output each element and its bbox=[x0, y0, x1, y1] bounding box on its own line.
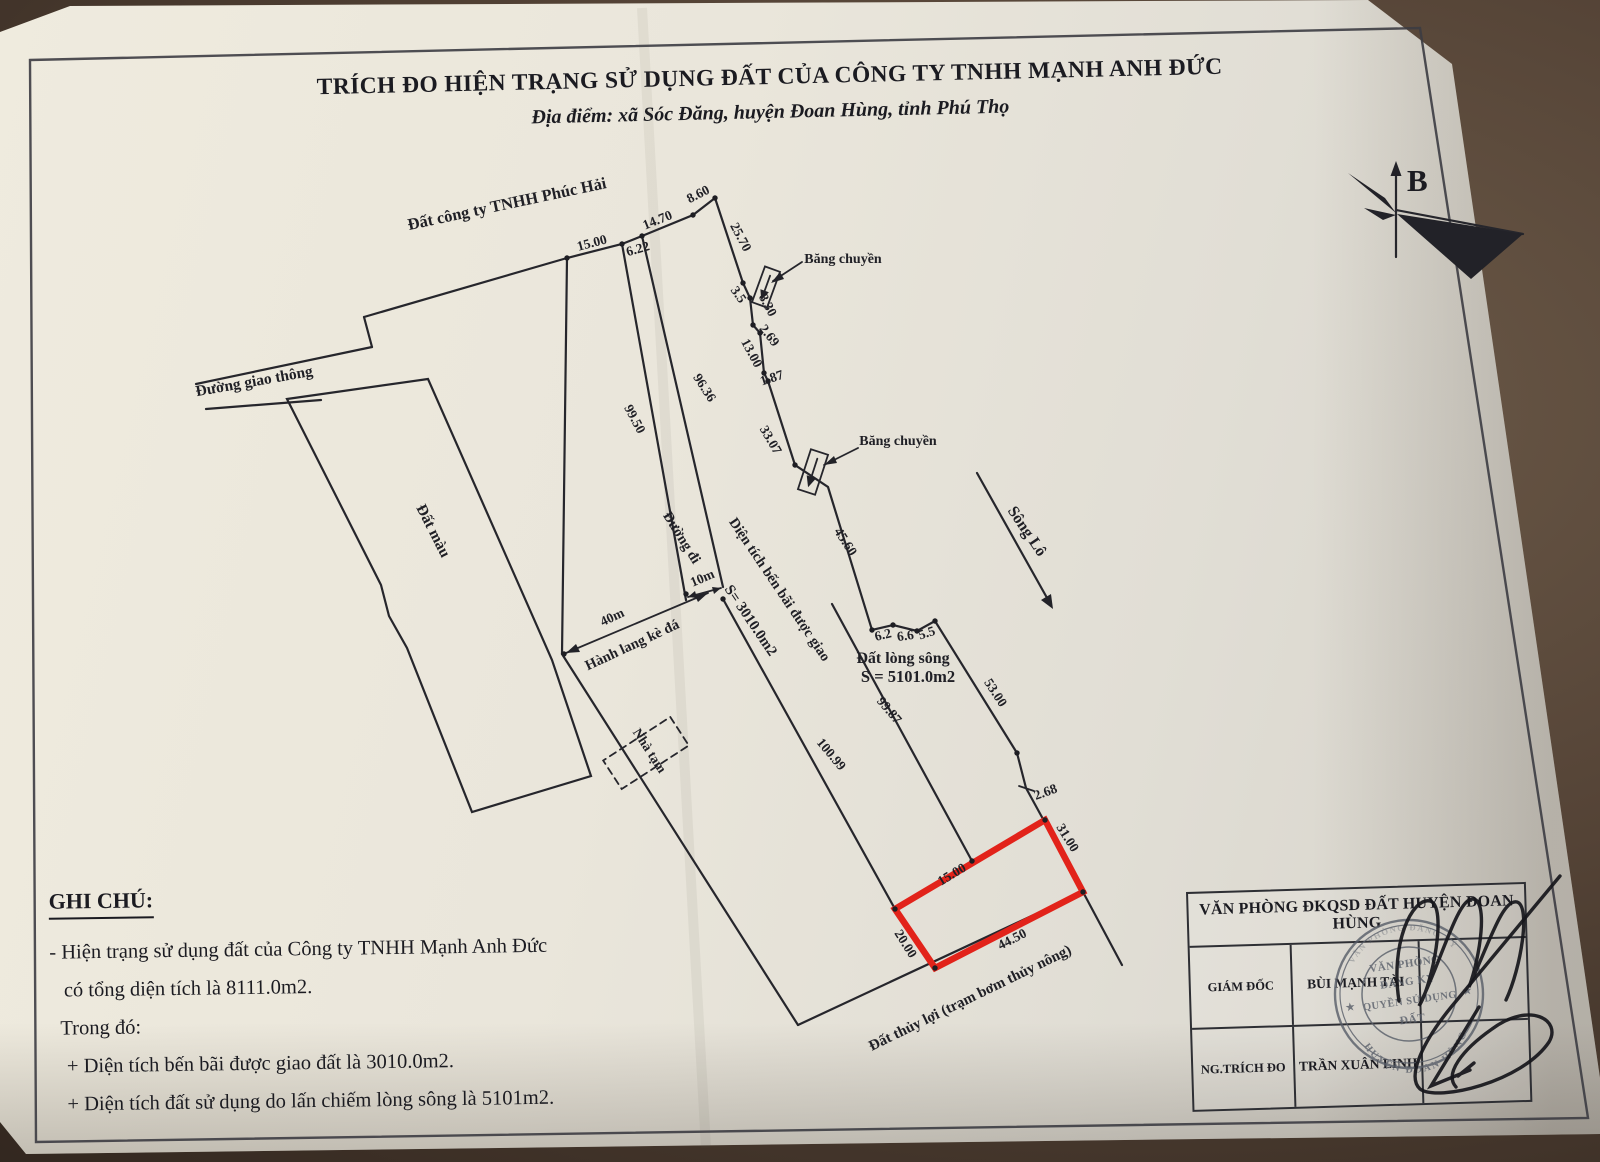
scanned-photo: TRÍCH ĐO HIỆN TRẠNG SỬ DỤNG ĐẤT CỦA CÔNG… bbox=[0, 0, 1600, 1162]
note-line: Trong đó: bbox=[50, 1008, 730, 1040]
title-block-row: GIÁM ĐỐCBÙI MẠNH TÀI bbox=[1190, 938, 1528, 1028]
legend-notes: GHI CHÚ: - Hiện trạng sử dụng đất của Cô… bbox=[48, 879, 731, 1116]
person-name: TRẦN XUÂN LINH bbox=[1292, 1023, 1422, 1107]
title-block-row: NG.TRÍCH ĐOTRẦN XUÂN LINH bbox=[1192, 1018, 1530, 1110]
note-line: - Hiện trạng sử dụng đất của Công ty TNH… bbox=[49, 932, 729, 964]
title-block-header: VĂN PHÒNG ĐKQSD ĐẤT HUYỆN ĐOAN HÙNG bbox=[1188, 884, 1525, 948]
person-name: BÙI MẠNH TÀI bbox=[1290, 941, 1420, 1025]
title-block-rows: GIÁM ĐỐCBÙI MẠNH TÀING.TRÍCH ĐOTRẦN XUÂN… bbox=[1190, 938, 1531, 1110]
note-line: + Diện tích bến bãi được giao đất là 301… bbox=[51, 1046, 731, 1078]
notes-heading: GHI CHÚ: bbox=[48, 887, 153, 919]
role-label: GIÁM ĐỐC bbox=[1190, 945, 1292, 1028]
role-label: NG.TRÍCH ĐO bbox=[1192, 1027, 1294, 1110]
notes-lines: - Hiện trạng sử dụng đất của Công ty TNH… bbox=[49, 932, 731, 1116]
signature-cell bbox=[1420, 1020, 1530, 1103]
title-block: VĂN PHÒNG ĐKQSD ĐẤT HUYỆN ĐOAN HÙNG GIÁM… bbox=[1186, 882, 1532, 1112]
signature-cell bbox=[1418, 938, 1528, 1021]
note-line: có tổng diện tích là 8111.0m2. bbox=[50, 970, 730, 1002]
